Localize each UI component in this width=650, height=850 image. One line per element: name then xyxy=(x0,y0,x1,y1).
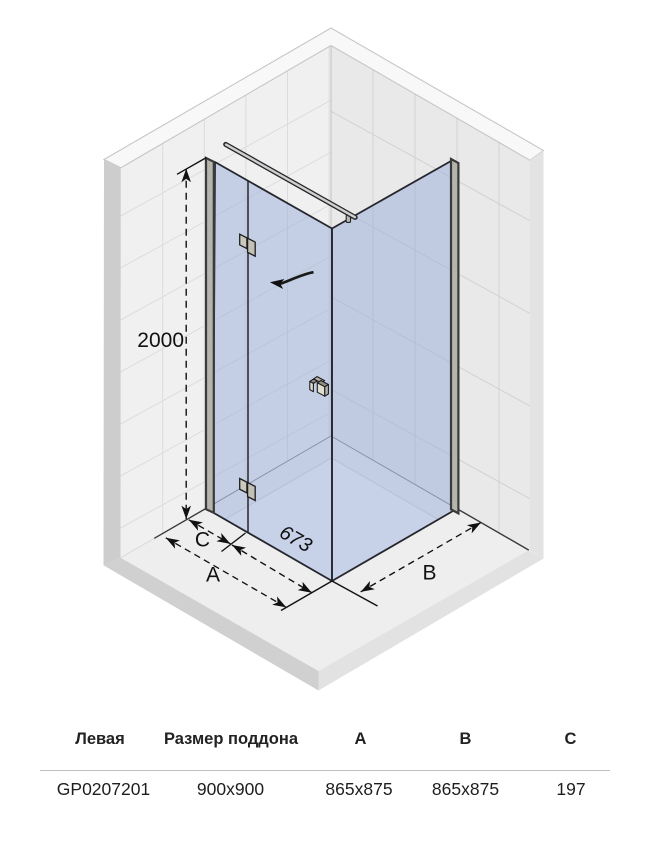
svg-text:Размер поддона: Размер поддона xyxy=(164,730,299,748)
svg-text:865x875: 865x875 xyxy=(432,779,499,799)
svg-text:A: A xyxy=(355,730,367,748)
svg-text:C: C xyxy=(565,730,577,748)
svg-text:C: C xyxy=(195,529,210,552)
svg-text:B: B xyxy=(460,730,472,748)
svg-text:197: 197 xyxy=(556,779,585,799)
svg-text:A: A xyxy=(206,564,220,587)
svg-text:GP0207201: GP0207201 xyxy=(57,779,150,799)
svg-text:865x875: 865x875 xyxy=(325,779,392,799)
svg-text:B: B xyxy=(422,562,436,585)
svg-text:2000: 2000 xyxy=(137,329,184,352)
svg-text:Левая: Левая xyxy=(75,730,124,748)
svg-text:900x900: 900x900 xyxy=(197,779,264,799)
